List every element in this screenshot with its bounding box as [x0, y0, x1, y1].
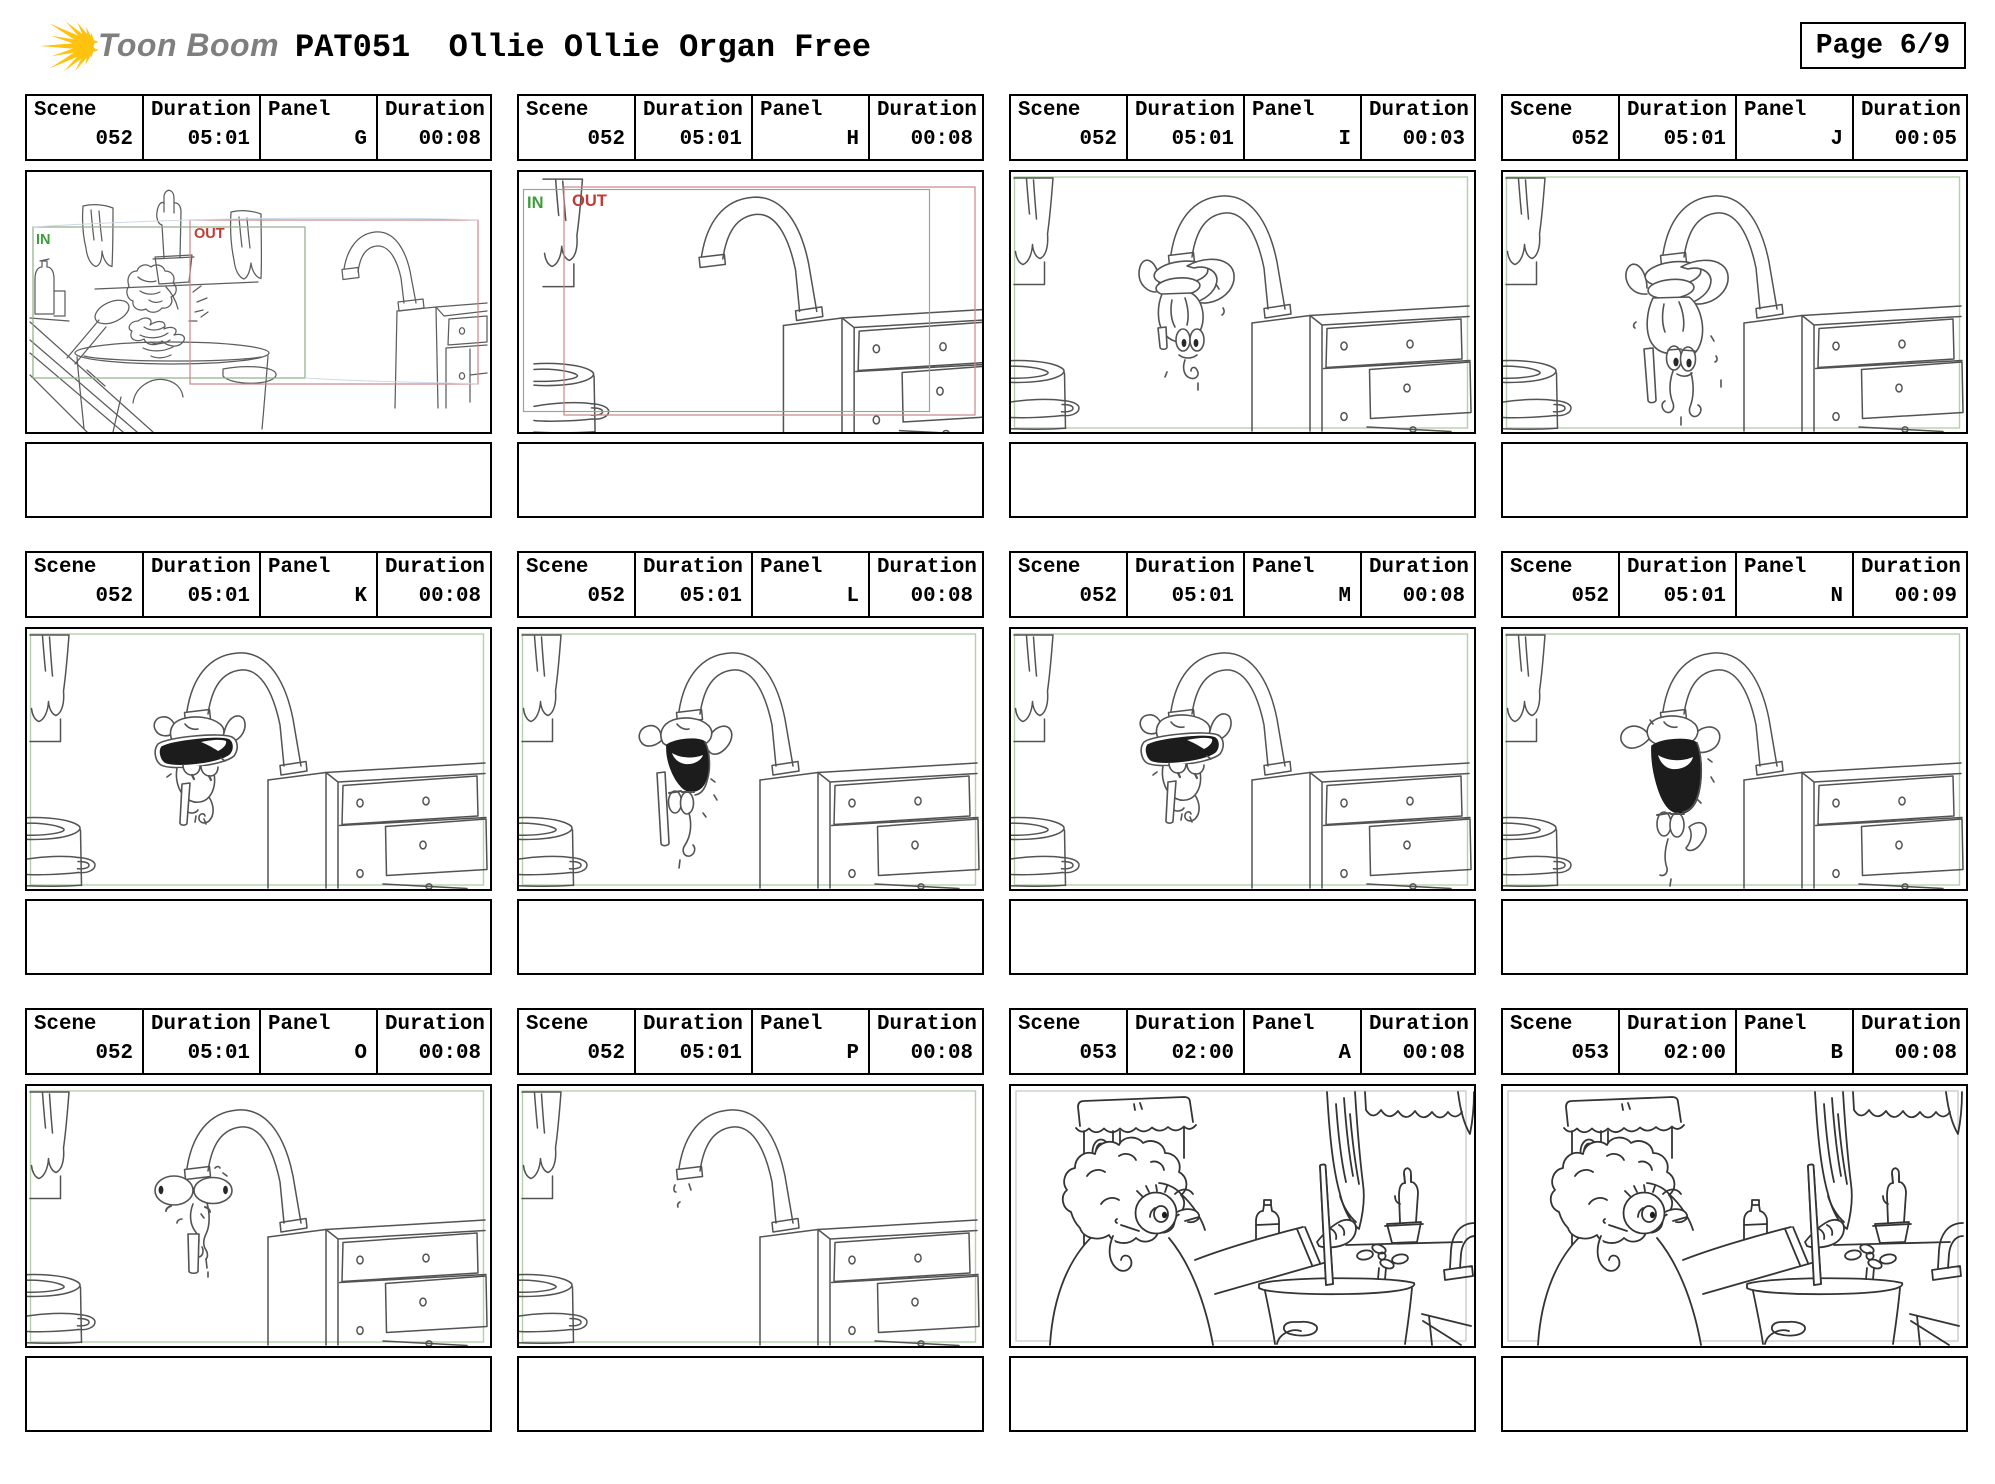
svg-text:OUT: OUT: [572, 192, 607, 210]
svg-text:IN: IN: [527, 194, 544, 212]
svg-text:IN: IN: [36, 232, 51, 248]
svg-text:OUT: OUT: [194, 226, 225, 242]
